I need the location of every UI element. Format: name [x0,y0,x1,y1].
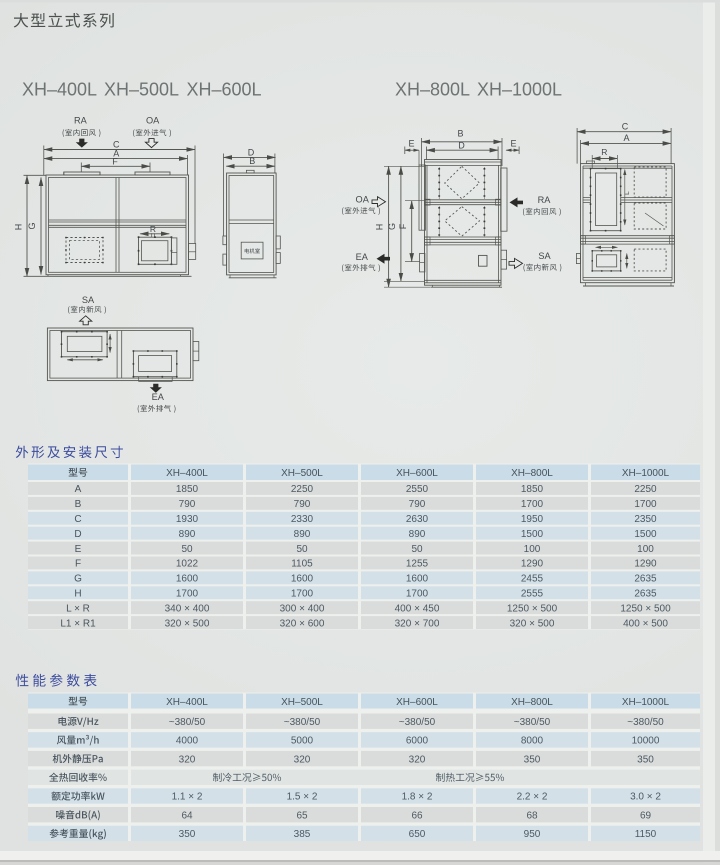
svg-text:2635: 2635 [634,574,657,585]
svg-text:XH–600L: XH–600L [396,697,438,708]
svg-text:1930: 1930 [176,514,199,525]
svg-text:~380/50: ~380/50 [399,717,436,728]
svg-text:320: 320 [294,754,311,765]
svg-text:2330: 2330 [291,514,314,525]
svg-text:790: 790 [294,499,311,510]
svg-text:1850: 1850 [176,484,199,495]
svg-text:1.8 × 2: 1.8 × 2 [402,792,433,803]
svg-text:50: 50 [411,544,423,555]
svg-text:L1 × R1: L1 × R1 [60,618,96,629]
svg-text:65: 65 [296,810,308,821]
svg-text:1700: 1700 [291,589,314,600]
svg-text:H: H [74,589,81,600]
svg-text:890: 890 [294,529,311,540]
svg-text:790: 790 [409,499,426,510]
svg-text:G: G [27,222,37,229]
svg-text:~380/50: ~380/50 [169,717,206,728]
svg-text:340 × 400: 340 × 400 [165,603,210,614]
svg-text:L × R: L × R [66,603,90,614]
svg-text:66: 66 [411,810,423,821]
svg-text:790: 790 [179,499,196,510]
svg-text:~380/50: ~380/50 [284,717,321,728]
svg-text:E: E [75,544,82,555]
svg-text:1255: 1255 [406,559,429,570]
svg-text:XH–800L: XH–800L [395,80,470,100]
svg-text:XH–800L: XH–800L [511,697,553,708]
svg-text:~380/50: ~380/50 [514,717,551,728]
svg-text:6000: 6000 [406,736,429,747]
svg-text:350: 350 [637,754,654,765]
svg-text:A: A [75,484,82,495]
svg-text:1290: 1290 [634,559,657,570]
svg-text:XH–1000L: XH–1000L [477,80,562,100]
svg-text:4000: 4000 [176,736,199,747]
svg-text:C: C [74,514,81,525]
svg-text:320: 320 [409,754,426,765]
svg-text:10000: 10000 [632,736,660,747]
svg-text:2.2 × 2: 2.2 × 2 [517,792,548,803]
svg-text:SA: SA [538,251,551,261]
svg-text:2555: 2555 [521,589,544,600]
svg-text:L: L [624,191,631,195]
svg-text:1250 × 500: 1250 × 500 [620,603,671,614]
svg-text:2350: 2350 [634,514,657,525]
svg-text:68: 68 [526,810,538,821]
svg-text:G: G [387,223,397,230]
svg-text:2635: 2635 [634,589,657,600]
svg-text:100: 100 [637,544,654,555]
svg-text:385: 385 [294,829,311,840]
svg-text:1.1 × 2: 1.1 × 2 [172,792,203,803]
svg-text:1600: 1600 [291,574,314,585]
svg-text:400 × 450: 400 × 450 [395,603,440,614]
svg-text:1950: 1950 [521,514,544,525]
svg-text:XH–500L: XH–500L [281,468,323,479]
svg-text:50: 50 [181,544,193,555]
svg-text:1022: 1022 [176,559,199,570]
svg-text:XH–400L: XH–400L [166,697,208,708]
svg-text:C: C [622,121,629,131]
svg-text:A: A [623,133,629,143]
svg-text:D: D [458,141,465,151]
svg-text:G: G [74,574,82,585]
svg-text:RA: RA [74,116,88,126]
svg-text:2250: 2250 [634,484,657,495]
svg-text:EA: EA [152,392,165,402]
svg-text:1500: 1500 [634,529,657,540]
svg-text:B: B [75,499,82,510]
svg-text:2550: 2550 [406,484,429,495]
svg-text:2250: 2250 [291,484,314,495]
svg-text:320: 320 [179,754,196,765]
svg-text:2630: 2630 [406,514,429,525]
svg-text:H: H [14,224,24,231]
svg-text:EA: EA [356,252,369,262]
svg-text:64: 64 [181,810,193,821]
svg-text:OA: OA [356,195,370,205]
svg-text:R: R [601,147,607,157]
svg-text:SA: SA [82,295,95,305]
svg-text:50: 50 [296,544,308,555]
svg-text:1250 × 500: 1250 × 500 [507,603,558,614]
svg-text:~380/50: ~380/50 [627,717,664,728]
svg-text:XH–500L: XH–500L [281,697,323,708]
svg-text:1105: 1105 [291,559,313,570]
svg-text:650: 650 [409,829,426,840]
svg-text:D: D [74,529,81,540]
svg-text:1600: 1600 [176,574,199,585]
svg-text:XH–600L: XH–600L [396,468,438,479]
svg-text:1600: 1600 [406,574,429,585]
svg-text:69: 69 [640,810,652,821]
svg-text:XH–1000L: XH–1000L [622,697,670,708]
svg-text:F: F [398,223,408,229]
svg-text:XH–600L: XH–600L [187,80,262,100]
svg-text:1700: 1700 [521,499,544,510]
svg-text:B: B [249,156,255,166]
svg-text:XH–500L: XH–500L [104,80,179,100]
svg-text:350: 350 [179,829,196,840]
svg-text:1700: 1700 [176,589,199,600]
svg-text:XH–400L: XH–400L [166,468,208,479]
svg-text:1700: 1700 [634,499,657,510]
svg-text:XH–800L: XH–800L [511,468,553,479]
svg-text:E: E [510,138,516,148]
svg-text:2455: 2455 [521,574,544,585]
svg-text:1700: 1700 [406,589,429,600]
svg-text:5000: 5000 [291,736,314,747]
svg-text:H: H [375,224,385,231]
svg-text:320 × 600: 320 × 600 [280,618,325,629]
svg-text:B: B [457,129,463,139]
svg-text:320 × 700: 320 × 700 [395,618,440,629]
svg-text:R: R [150,224,156,234]
svg-text:1290: 1290 [521,559,544,570]
svg-text:350: 350 [524,754,541,765]
svg-text:890: 890 [409,529,426,540]
svg-text:100: 100 [524,544,541,555]
svg-text:1.5 × 2: 1.5 × 2 [287,792,318,803]
svg-text:950: 950 [524,829,541,840]
svg-text:1500: 1500 [521,529,544,540]
svg-text:320 × 500: 320 × 500 [165,618,210,629]
svg-text:8000: 8000 [521,736,544,747]
svg-text:3.0 × 2: 3.0 × 2 [630,792,661,803]
svg-text:RA: RA [538,195,552,205]
svg-text:XH–400L: XH–400L [22,80,97,100]
svg-text:F: F [75,559,81,570]
svg-text:E: E [408,138,414,148]
svg-text:1150: 1150 [635,829,657,840]
svg-text:OA: OA [146,116,160,126]
svg-text:400 × 500: 400 × 500 [623,618,668,629]
svg-text:F: F [112,156,118,166]
svg-text:1850: 1850 [521,484,544,495]
svg-text:320 × 500: 320 × 500 [510,618,555,629]
svg-text:XH–1000L: XH–1000L [622,468,670,479]
svg-text:890: 890 [179,529,196,540]
svg-text:300 × 400: 300 × 400 [280,603,325,614]
